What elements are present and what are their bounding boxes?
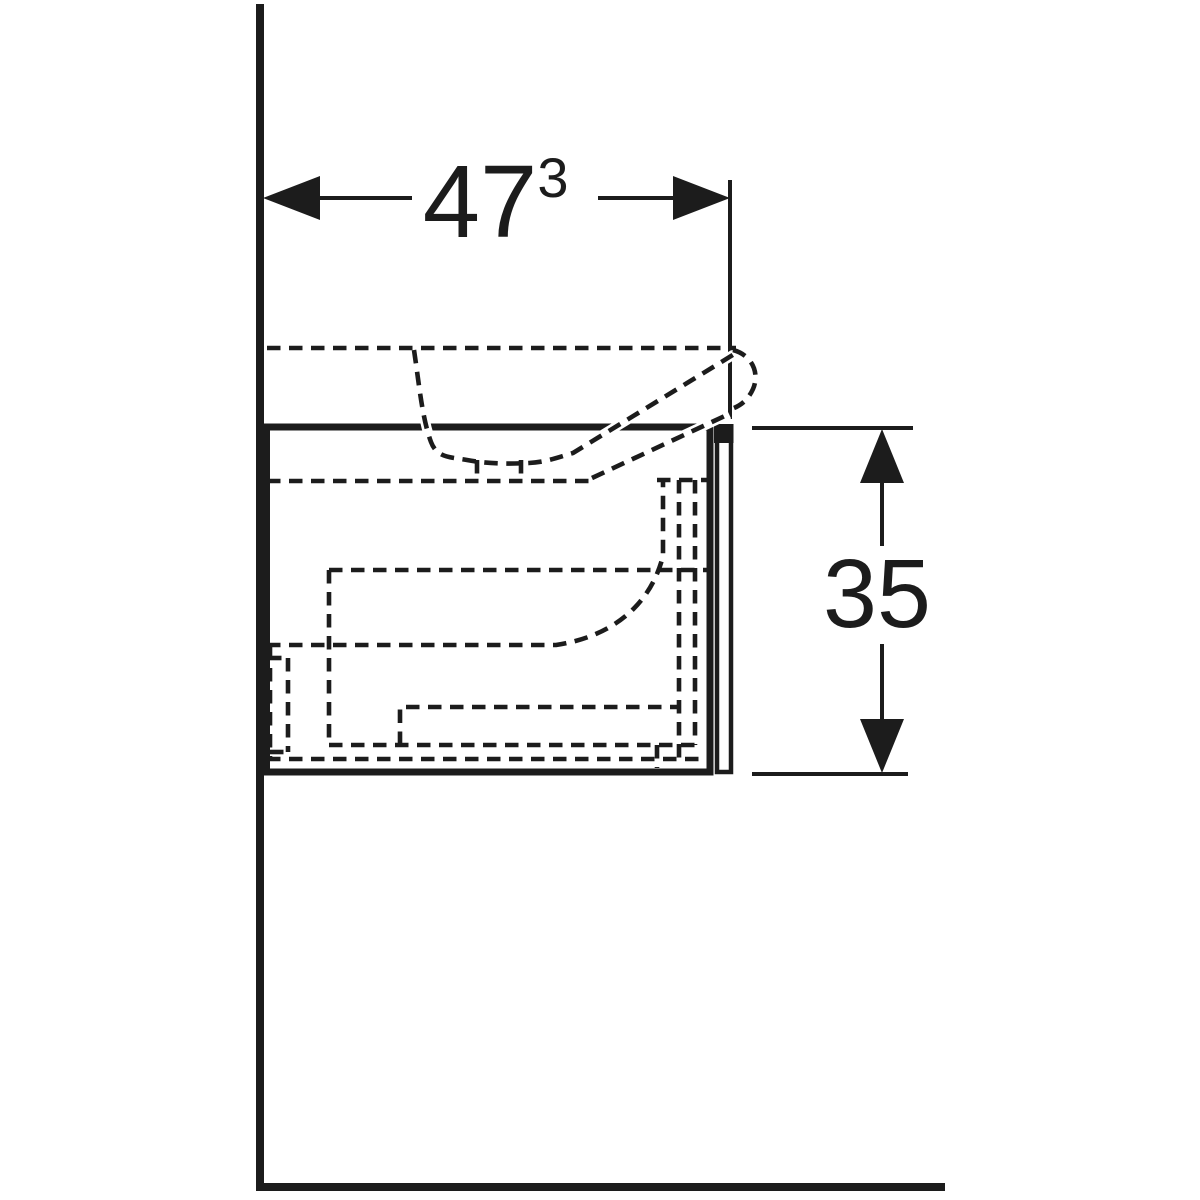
arrow-right-icon (673, 176, 730, 220)
front-panel-outline (717, 430, 731, 772)
basin-bowl-casing (414, 350, 736, 464)
technical-drawing-canvas: 47 3 35 (0, 0, 1200, 1200)
arrow-left-icon (263, 176, 320, 220)
front-panel-top-cap (714, 424, 734, 443)
drawer-front-panel (714, 424, 734, 772)
arrow-up-icon (860, 429, 904, 483)
height-dimension-label: 35 (823, 539, 931, 648)
width-dimension-superscript: 3 (537, 146, 568, 209)
arrow-down-icon (860, 719, 904, 773)
hidden-interior-lines (267, 480, 713, 768)
width-dimension-label: 47 (423, 144, 538, 259)
washbasin-hidden-profile (267, 348, 756, 481)
basin-front-arc-casing (733, 350, 756, 408)
drawer-cutout-curve (267, 481, 663, 645)
drawer-inner-recess (400, 707, 679, 745)
vanity-side-elevation-drawing: 47 3 35 (0, 0, 1200, 1200)
width-dimension: 47 3 (263, 144, 730, 419)
height-dimension: 35 (752, 428, 931, 774)
